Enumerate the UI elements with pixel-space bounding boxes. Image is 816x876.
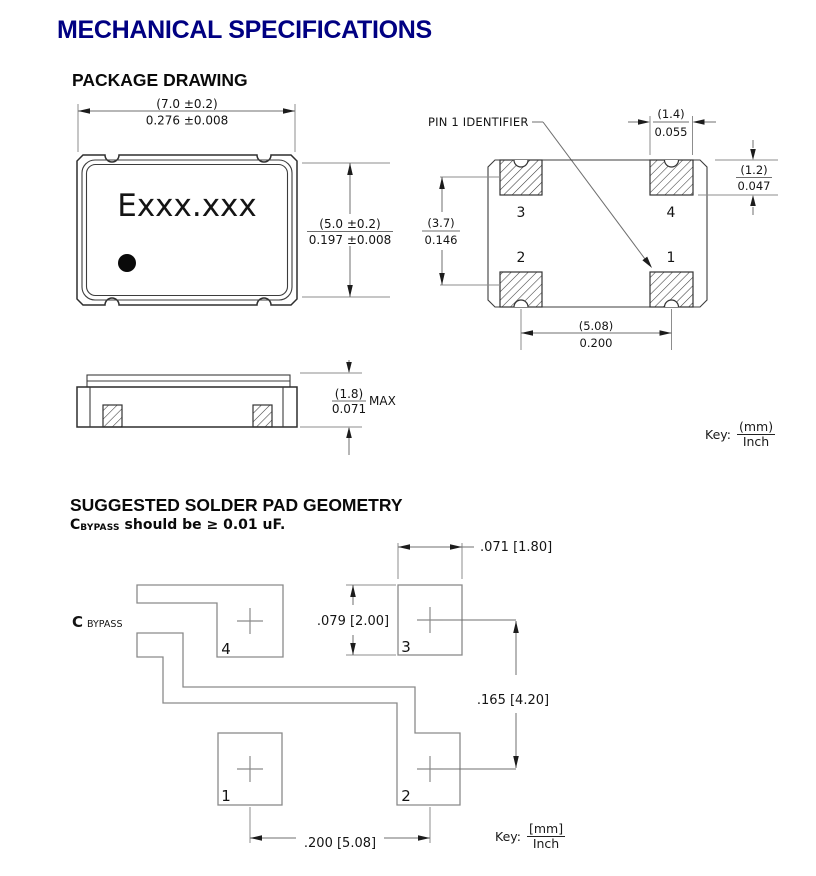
- thickness-inch-label: 0.071: [332, 402, 366, 416]
- solder-pad-number-1: 1: [221, 787, 231, 805]
- part-number-label: Exxx.xxx: [117, 188, 257, 224]
- thickness-mm-label: (1.8): [335, 387, 363, 401]
- side-view-body: [77, 375, 297, 427]
- col-pitch-mm-label: (5.08): [579, 319, 614, 333]
- pin1-dot-icon: [118, 254, 136, 272]
- solder-pad-number-2: 2: [401, 787, 411, 805]
- key-units-bottom: Inch: [533, 837, 559, 851]
- solder-pad-heading: SUGGESTED SOLDER PAD GEOMETRY: [70, 495, 403, 516]
- col-pitch-dimension: (5.08) 0.200: [521, 309, 672, 350]
- height-mm-label: (5.0 ±0.2): [319, 217, 380, 231]
- solder-pad-width-label: .071 [1.80]: [480, 540, 552, 555]
- bypass-trace-and-pad-2: [137, 633, 460, 805]
- row-pitch-inch-label: 0.146: [425, 233, 458, 247]
- solder-pad-number-4: 4: [221, 640, 231, 658]
- thickness-qualifier-label: MAX: [369, 394, 396, 408]
- row-pitch-mm-label: (3.7): [427, 216, 454, 230]
- pin1-identifier-label: PIN 1 IDENTIFIER: [428, 115, 529, 129]
- key-label: Key:: [495, 829, 521, 844]
- pin-number-4: 4: [667, 205, 676, 221]
- pin-number-1: 1: [667, 250, 676, 266]
- solder-pad-width-dimension: .071 [1.80]: [398, 540, 552, 579]
- height-inch-label: 0.197 ±0.008: [309, 233, 392, 247]
- pin-layout-drawing: PIN 1 IDENTIFIER 3 4 2 1: [420, 100, 800, 360]
- side-pad-right: [253, 405, 272, 427]
- pin-number-2: 2: [517, 250, 526, 266]
- solder-pad-number-3: 3: [401, 638, 411, 656]
- note-prefix: C: [70, 517, 80, 533]
- note-rest: should be ≥ 0.01 uF.: [120, 517, 286, 533]
- col-pitch-inch-label: 0.200: [580, 336, 613, 350]
- key-units-top: (mm): [737, 420, 775, 435]
- solder-col-pitch-dimension: .200 [5.08]: [250, 807, 430, 851]
- package-drawing-heading: PACKAGE DRAWING: [72, 70, 248, 91]
- castellation-pads: [500, 160, 693, 307]
- key-fraction: (mm) Inch: [737, 420, 775, 450]
- page-title: MECHANICAL SPECIFICATIONS: [57, 16, 432, 45]
- solder-col-pitch-label: .200 [5.08]: [304, 836, 376, 851]
- package-body-outline: Exxx.xxx: [77, 155, 297, 305]
- bypass-capacitor-label: C BYPASS: [72, 613, 122, 631]
- solder-pad-height-label: .079 [2.00]: [317, 614, 389, 629]
- solder-row-pitch-label: .165 [4.20]: [477, 693, 549, 708]
- package-side-view-drawing: (1.8) 0.071 MAX: [60, 360, 420, 460]
- pad-height-mm-label: (1.2): [740, 163, 767, 177]
- package-top-view-drawing: (7.0 ±0.2) 0.276 ±0.008 Exxx.xxx (5.0 ±0…: [60, 95, 420, 335]
- note-subscript: BYPASS: [80, 523, 119, 533]
- pad-width-dimension: (1.4) 0.055: [628, 107, 716, 155]
- cap-label-prefix: C: [72, 613, 83, 631]
- pad-height-dimension: (1.2) 0.047: [698, 140, 778, 215]
- pad-width-mm-label: (1.4): [657, 107, 684, 121]
- units-key-package: Key: (mm) Inch: [705, 420, 775, 450]
- pad-height-inch-label: 0.047: [738, 179, 771, 193]
- pin-number-3: 3: [517, 205, 526, 221]
- height-dimension: (5.0 ±0.2) 0.197 ±0.008: [302, 163, 393, 297]
- width-inch-label: 0.276 ±0.008: [146, 114, 229, 128]
- key-units-bottom: Inch: [743, 435, 769, 449]
- cap-label-subscript: BYPASS: [87, 619, 122, 630]
- width-mm-label: (7.0 ±0.2): [156, 97, 217, 111]
- units-key-solder: Key: [mm] Inch: [495, 822, 565, 852]
- datasheet-page: MECHANICAL SPECIFICATIONS PACKAGE DRAWIN…: [0, 0, 816, 876]
- solder-pad-height-dimension: .079 [2.00]: [317, 585, 396, 655]
- key-fraction: [mm] Inch: [527, 822, 565, 852]
- pad-width-inch-label: 0.055: [655, 125, 688, 139]
- width-dimension: (7.0 ±0.2) 0.276 ±0.008: [78, 97, 295, 152]
- side-pad-left: [103, 405, 122, 427]
- key-units-top: [mm]: [527, 822, 565, 837]
- key-label: Key:: [705, 427, 731, 442]
- thickness-dimension: (1.8) 0.071 MAX: [300, 360, 396, 455]
- bypass-capacitor-note: CBYPASS should be ≥ 0.01 uF.: [70, 517, 285, 533]
